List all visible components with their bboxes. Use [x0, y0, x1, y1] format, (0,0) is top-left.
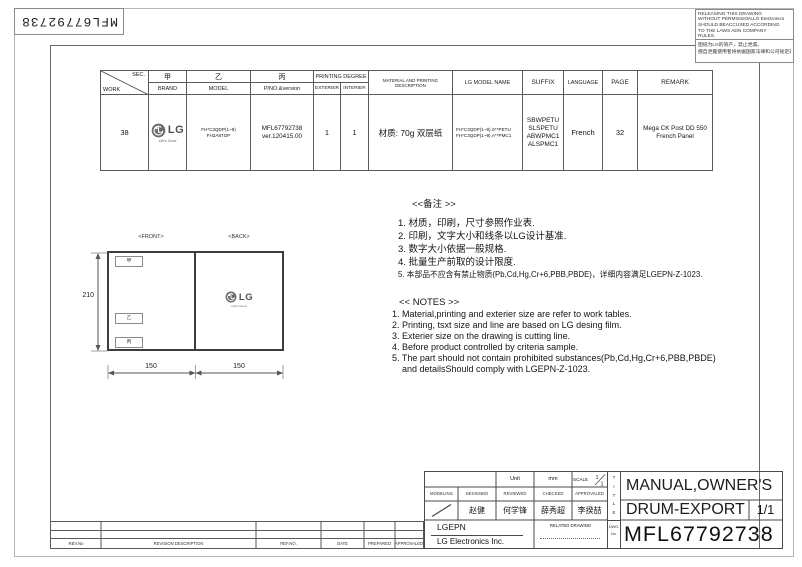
- page-header: PAGE: [603, 71, 638, 95]
- suffix-line: SBWPETU: [523, 117, 563, 125]
- note-en-item: 1. Material,printing and exterier size a…: [392, 309, 752, 320]
- pno-cn-header: 丙: [251, 71, 314, 83]
- back-panel-label: <BACK>: [207, 234, 271, 240]
- drawing-sheet: MFL67792738 RELEASING THIS DRAWING WITHO…: [0, 0, 802, 567]
- sec-work-header-cell: SEC. WORK: [101, 71, 149, 95]
- note-en-item: 3. Exterier size on the drawing is cutti…: [392, 331, 752, 342]
- warning-english: RELEASING THIS DRAWING WITHOUT PERMISSIO…: [696, 10, 793, 40]
- title-letter: I: [608, 483, 620, 492]
- suffix-cell: SBWPETU SLSPETU ABWPMC1 ALSPMC1: [523, 95, 564, 171]
- material-value: 材质: 70g 双层纸: [369, 95, 453, 171]
- exterier-value: 1: [314, 95, 341, 171]
- revision-description-header: REVISION DESCRIPTION: [101, 539, 256, 549]
- model-line: FH2A8TDP: [187, 133, 250, 139]
- pno-version-line: ver.120415.00: [251, 133, 313, 141]
- scale-label: SCALE: [573, 477, 588, 482]
- lg-model-line: FH*C3QDP(1~9).A**PMC1: [456, 133, 522, 139]
- lg-tagline: Life's Good: [149, 139, 186, 143]
- pno-header: P/NO.&version: [251, 83, 314, 95]
- related-drawing-dotted-line: [540, 538, 600, 539]
- rev-no-header: REV.No: [51, 539, 101, 549]
- company-cell: LGEPN LG Electronics Inc.: [425, 520, 534, 548]
- product-title: MANUAL,OWNER'S: [626, 472, 772, 500]
- suffix-line: SLSPETU: [523, 125, 563, 133]
- printing-degree-header: PRINTING DEGREE: [314, 71, 369, 83]
- sec-header: SEC.: [132, 72, 145, 78]
- notes-cn-list: 1. 材质，印刷，尺寸参照作业表. 2. 印刷，文字大小和线条以LG设计基准. …: [398, 217, 728, 281]
- notes-en-title: << NOTES >>: [399, 297, 459, 308]
- work-table: SEC. WORK 甲 乙 丙 PRINTING DEGREE MATERIAL…: [100, 70, 713, 171]
- date-header: DATE: [321, 539, 364, 549]
- unit-label: Unit: [496, 472, 534, 487]
- title-block-strip: T I T L E DWG. No.: [608, 471, 620, 549]
- interier-value: 1: [341, 95, 369, 171]
- dwg-no-label: No.: [608, 531, 620, 538]
- note-en-item: 2. Printing, tsxt size and line are base…: [392, 320, 752, 331]
- scale-denominator: 1: [601, 482, 604, 487]
- product-subtitle: DRUM-EXPORT: [626, 500, 745, 520]
- page-value: 32: [603, 95, 638, 171]
- strip-divider-line: [608, 520, 620, 521]
- related-drawing-cell: RELATED DRAWING: [534, 520, 607, 548]
- title-letter: E: [608, 509, 620, 518]
- related-drawing-label: RELATED DRAWING: [534, 523, 607, 528]
- reviewed-label: REVIEWED: [496, 487, 534, 501]
- title-block-approvals: Unit mm SCALE 1 1 MODELING DESIGNED REVI…: [424, 471, 608, 549]
- designed-label: DESIGNED: [458, 487, 496, 501]
- height-dimension: 210: [74, 292, 94, 299]
- front-panel-label: <FRONT>: [119, 234, 183, 240]
- drawing-number: MFL67792738: [624, 520, 774, 548]
- remark-line: French Panel: [638, 133, 712, 141]
- prepared-header: PREPARED: [364, 539, 395, 549]
- barcode-label-box: MFL67792738: [14, 8, 124, 35]
- checked-label: CHECKED: [534, 487, 572, 501]
- lg-model-name-header: LG MODEL NAME: [453, 71, 523, 95]
- brand-cell: LG Life's Good: [149, 95, 187, 171]
- language-header: LANGUAGE: [564, 71, 603, 95]
- suffix-header: SUFFIX: [523, 71, 564, 95]
- title-letter: T: [608, 474, 620, 483]
- pno-cell: MFL67792738 ver.120415.00: [251, 95, 314, 171]
- language-value: French: [564, 95, 603, 171]
- note-cn-item: 1. 材质，印刷，尺寸参照作业表.: [398, 217, 728, 230]
- remark-line: Mega CK Post DD 550: [638, 125, 712, 133]
- note-cn-item: 4. 批量生产前取的设计限度.: [398, 256, 728, 269]
- title-letter: T: [608, 492, 620, 501]
- brand-cn-header: 甲: [149, 71, 187, 83]
- scale-cell: SCALE 1 1: [572, 472, 607, 487]
- designed-by: 赵健: [458, 501, 496, 520]
- approved-by: 李揆喆: [572, 501, 607, 520]
- notes-en-list: 1. Material,printing and exterier size a…: [392, 309, 752, 375]
- exterier-header: EXTERIER: [314, 83, 341, 95]
- pno-line: MFL67792738: [251, 125, 313, 133]
- brand-header: BRAND: [149, 83, 187, 95]
- note-cn-item: 3. 数字大小依据一般规格.: [398, 243, 728, 256]
- remark-cell: Mega CK Post DD 550 French Panel: [638, 95, 713, 171]
- note-en-item: and detailsShould comply with LGEPN-Z-10…: [392, 364, 752, 375]
- work-header: WORK: [103, 87, 120, 93]
- model-header: MODEL: [187, 83, 251, 95]
- suffix-line: ALSPMC1: [523, 141, 563, 149]
- sheet-number: 1/1: [749, 500, 782, 520]
- release-warning-box: RELEASING THIS DRAWING WITHOUT PERMISSIO…: [695, 9, 794, 63]
- warning-line: 擅自泄露使用者将依据国家法律和公司规定处罚。: [698, 49, 791, 56]
- revision-table: REV.No REVISION DESCRIPTION REF.NO. DATE…: [50, 521, 424, 549]
- title-letter: L: [608, 500, 620, 509]
- note-cn-item: 5. 本部品不应含有禁止物质(Pb,Cd,Hg,Cr+6,PBB,PBDE)，详…: [398, 269, 728, 281]
- scale-numerator: 1: [596, 475, 599, 481]
- suffix-line: ABWPMC1: [523, 133, 563, 141]
- title-vertical-label: T I T L E: [608, 474, 620, 518]
- note-en-item: 5. The part should not contain prohibite…: [392, 353, 752, 364]
- warning-line: 图纸为LG的资产，禁止泄漏。: [698, 42, 791, 49]
- width-dimension-left: 150: [127, 363, 175, 370]
- notes-cn-title: <<备注 >>: [412, 196, 456, 210]
- company-divider-line: [431, 535, 523, 536]
- modeling-label: MODELING: [425, 487, 458, 501]
- lg-logo-icon: [151, 123, 166, 138]
- material-header: MATERIAL AND PRINTING DESCRIPTION: [369, 71, 453, 95]
- company-short: LGEPN: [437, 522, 466, 532]
- note-cn-item: 2. 印刷，文字大小和线条以LG设计基准.: [398, 230, 728, 243]
- modeling-slash-mark: [425, 501, 458, 520]
- company-full: LG Electronics Inc.: [437, 537, 504, 546]
- interier-header: INTERIER: [341, 83, 369, 95]
- lg-model-name-cell: FH*C3QDP(1~9).S**PETU FH*C3QDP(1~9).A**P…: [453, 95, 523, 171]
- reviewed-by: 何学锋: [496, 501, 534, 520]
- warning-chinese: 图纸为LG的资产，禁止泄漏。 擅自泄露使用者将依据国家法律和公司规定处罚。: [696, 40, 793, 57]
- model-cell: FH*C3QDP(1~9) FH2A8TDP: [187, 95, 251, 171]
- ref-no-header: REF.NO.: [256, 539, 321, 549]
- lg-logo-text: LG: [168, 124, 184, 136]
- remark-header: REMARK: [638, 71, 713, 95]
- unit-value: mm: [534, 472, 572, 487]
- note-en-item: 4. Before product controlled by criteria…: [392, 342, 752, 353]
- approvaled-header: APPROVALED: [395, 539, 423, 549]
- barcode-text: MFL67792738: [21, 14, 118, 29]
- scale-fraction: 1 1: [594, 473, 606, 486]
- model-cn-header: 乙: [187, 71, 251, 83]
- title-block-title-area: MANUAL,OWNER'S DRUM-EXPORT 1/1 MFL677927…: [620, 471, 783, 549]
- approvaled-label: APPROVALED: [572, 487, 607, 501]
- width-dimension-right: 150: [215, 363, 263, 370]
- dwg-label: DWG.: [608, 524, 620, 531]
- checked-by: 薛秀超: [534, 501, 572, 520]
- work-value: 38: [101, 95, 149, 171]
- warning-line: SHOULD BEACCUSED ACCORDING: [698, 23, 791, 29]
- dimension-lines: [75, 245, 290, 380]
